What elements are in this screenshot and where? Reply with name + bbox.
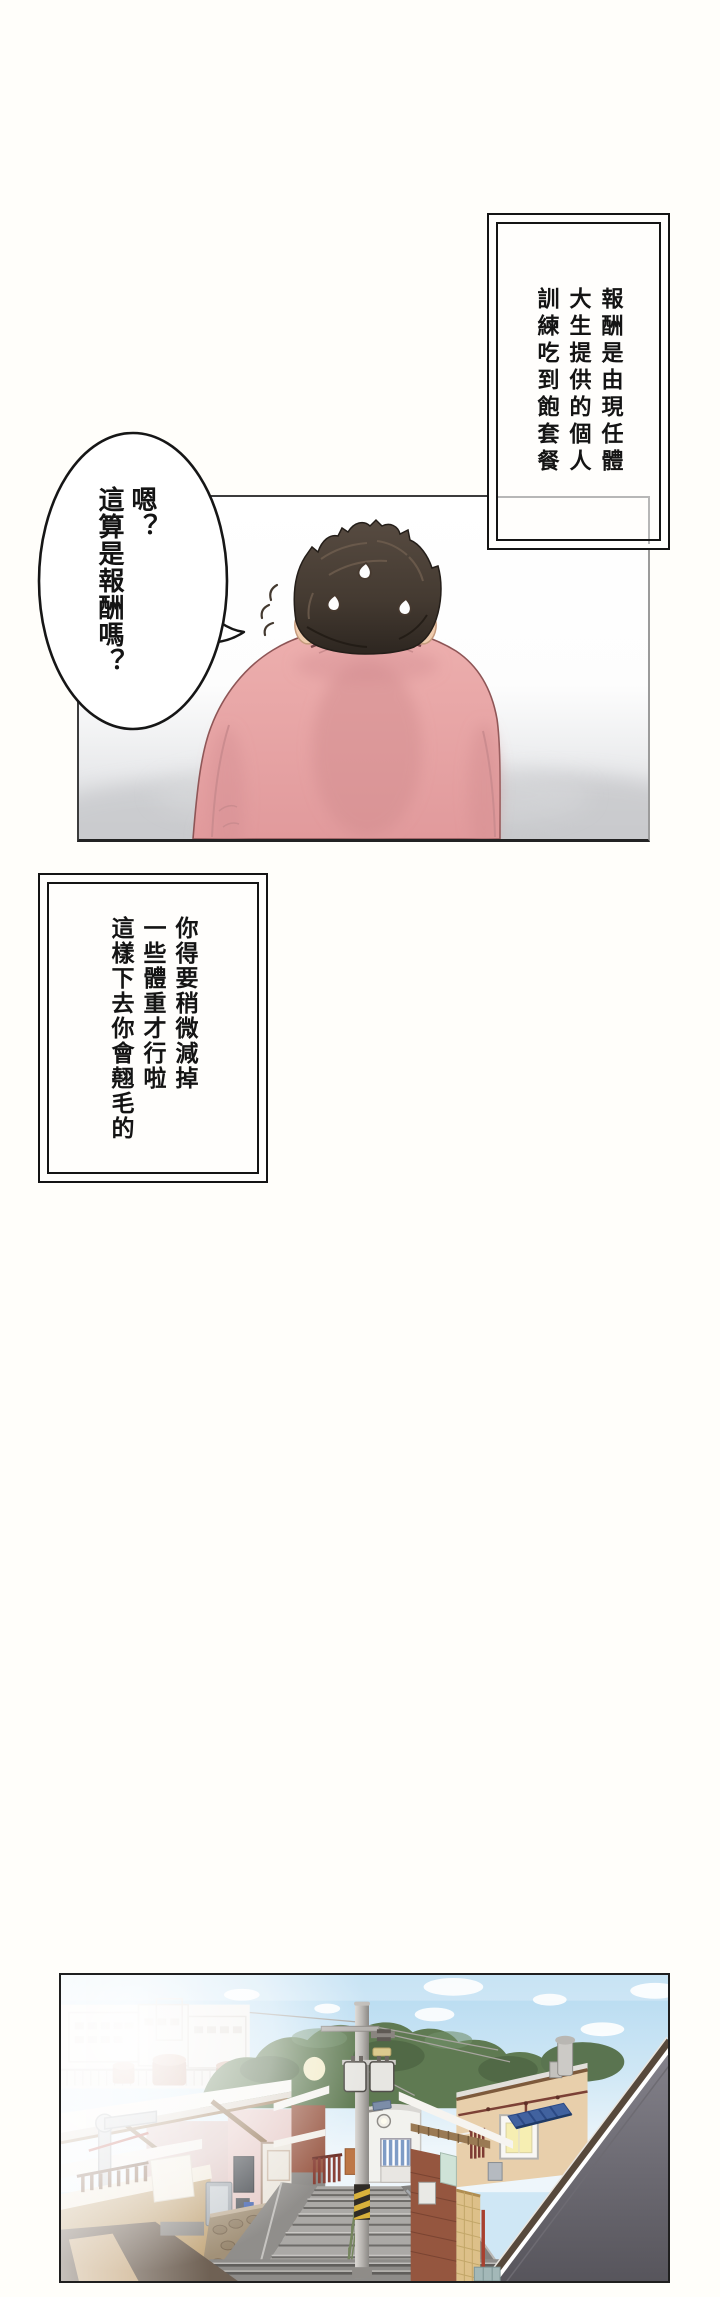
caption-line: 報酬是由現任體 xyxy=(595,287,627,476)
caption-box-inner-border: 你得要稍微減掉 一些體重才行啦 這樣下去你會翹毛的 xyxy=(47,882,259,1174)
speech-bubble-text: 嗯？ 這算是報酬嗎？ xyxy=(89,486,159,726)
warning-stripes xyxy=(354,2184,370,2220)
speech-line: 嗯？ xyxy=(126,486,159,726)
caption-line: 這樣下去你會翹毛的 xyxy=(105,916,137,1141)
ac-unit-right xyxy=(488,2163,502,2181)
wall-box xyxy=(419,2182,436,2204)
caption-text: 報酬是由現任體 大生提供的個人 訓練吃到飽套餐 xyxy=(531,287,627,476)
caption-box-top-right: 報酬是由現任體 大生提供的個人 訓練吃到飽套餐 xyxy=(487,213,670,550)
pole-base xyxy=(352,2267,372,2278)
caption-line: 你得要稍微減掉 xyxy=(169,916,201,1141)
speech-line: 這算是報酬嗎？ xyxy=(93,486,126,726)
street-scene-illustration xyxy=(61,1975,668,2281)
mint-panel xyxy=(440,2153,456,2187)
caption-text: 你得要稍微減掉 一些體重才行啦 這樣下去你會翹毛的 xyxy=(105,916,201,1141)
caption-box-left: 你得要稍微減掉 一些體重才行啦 這樣下去你會翹毛的 xyxy=(38,873,268,1183)
panel-street-scene xyxy=(59,1973,670,2283)
striped-shutter-gate xyxy=(381,2139,411,2182)
glass-block xyxy=(474,2267,500,2281)
pole-sign xyxy=(373,2048,391,2056)
caption-line: 一些體重才行啦 xyxy=(137,916,169,1141)
caption-box-inner-border: 報酬是由現任體 大生提供的個人 訓練吃到飽套餐 xyxy=(496,222,661,541)
comic-page: 報酬是由現任體 大生提供的個人 訓練吃到飽套餐 嗯？ 這算是報酬嗎？ 你得要稍微… xyxy=(0,0,720,2297)
caption-line: 大生提供的個人 xyxy=(563,287,595,476)
caption-line: 訓練吃到飽套餐 xyxy=(531,287,563,476)
